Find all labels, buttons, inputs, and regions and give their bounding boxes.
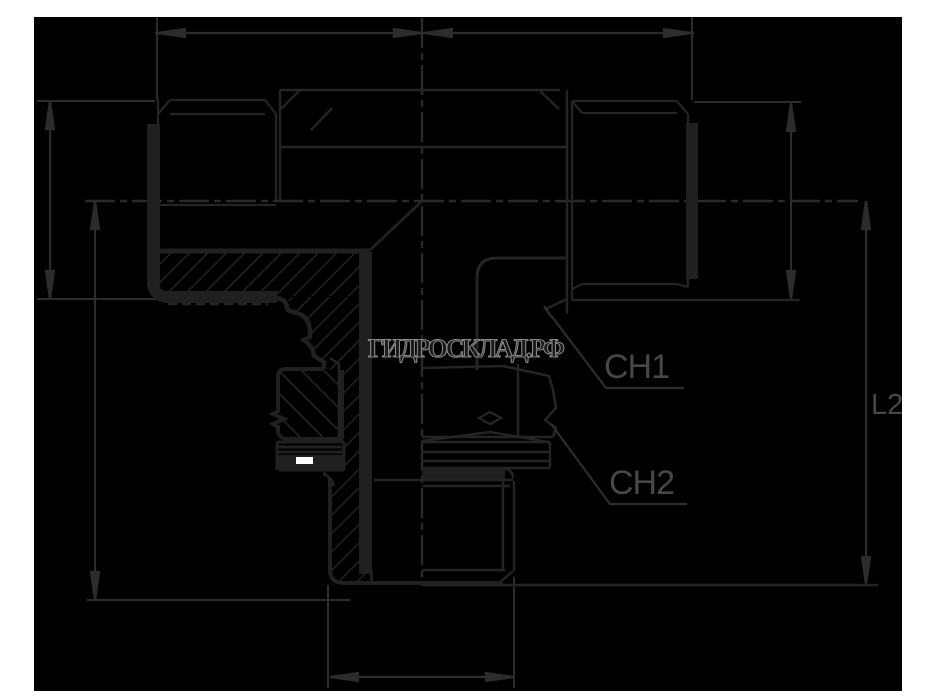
svg-text:L2: L2 <box>871 389 903 421</box>
svg-text:CH1: CH1 <box>604 348 669 386</box>
svg-text:CH2: CH2 <box>609 464 674 502</box>
svg-text:ГИДРОСКЛАД.РФ: ГИДРОСКЛАД.РФ <box>368 334 565 363</box>
